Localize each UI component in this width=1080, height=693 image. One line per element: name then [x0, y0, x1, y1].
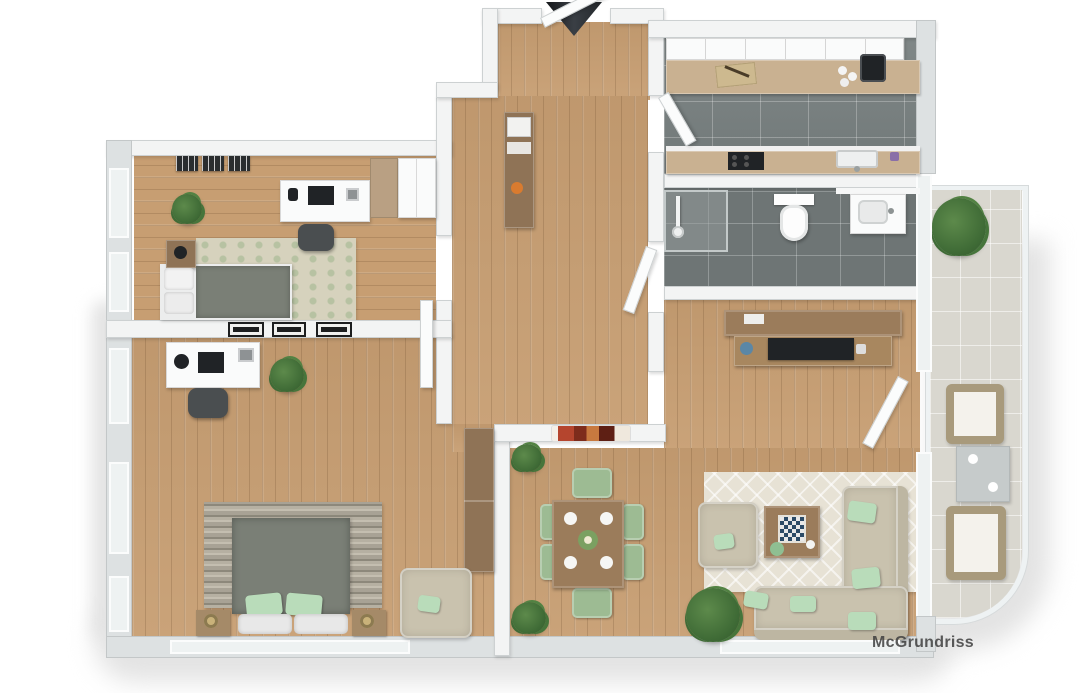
kitchen-counter-bottom	[666, 146, 920, 174]
window-left-5	[109, 576, 129, 632]
balcony-plant	[932, 198, 986, 256]
wall-bath-living-divider	[664, 286, 922, 300]
espresso-machine	[860, 54, 886, 82]
vanity-sink	[858, 200, 888, 224]
blue-vase-deco	[740, 342, 753, 355]
shower-fixture	[676, 196, 680, 230]
window-left-1	[109, 168, 129, 238]
master-desk-chair	[188, 388, 228, 418]
armchair-pillow	[713, 533, 735, 551]
sideboard-deco-right	[856, 344, 866, 354]
small-bedroom-window-vent-3	[228, 156, 250, 171]
bedroom-wall-picture-3	[316, 322, 352, 337]
balcony-chair-top	[946, 384, 1004, 444]
single-bed-pillow-1	[164, 268, 194, 290]
living-plant	[686, 588, 740, 642]
cooktop-burner-1	[732, 155, 737, 160]
master-monitor	[198, 352, 224, 373]
coffee-table-mint-deco	[770, 542, 784, 556]
small-bedroom-window-vent-2	[202, 156, 224, 171]
master-plant	[270, 358, 304, 392]
kitchen-cup-1	[838, 66, 847, 75]
window-left-2	[109, 252, 129, 312]
hall-cabinet-box	[507, 142, 531, 154]
dining-centerpiece	[578, 530, 598, 550]
dining-chair-right-1	[622, 504, 644, 540]
small-bedroom-door	[420, 300, 433, 388]
shower	[664, 190, 728, 252]
single-bed-blanket	[196, 266, 290, 318]
wall-hall-left-lower	[436, 334, 452, 424]
bedroom-wall-picture-2	[272, 322, 306, 337]
cutting-board	[715, 62, 757, 88]
dining-plate-2	[600, 512, 613, 525]
sofa-pillow-5	[848, 612, 876, 630]
wall-entry-step	[436, 82, 498, 98]
cooktop-burner-3	[732, 162, 737, 167]
small-bedroom-chair	[298, 224, 334, 251]
dining-plate-3	[564, 556, 577, 569]
wall-top-left-outer	[106, 140, 452, 156]
small-bedroom-wardrobe-wood	[370, 158, 398, 218]
dining-plate-4	[600, 556, 613, 569]
wall-hall-right-low	[648, 312, 664, 372]
single-bed-pillow-2	[164, 292, 194, 314]
sofa-pillow-2	[851, 567, 881, 590]
balcony-chair-bottom	[946, 506, 1006, 580]
coffee-table-cup	[806, 540, 815, 549]
wall-kitchen-bath-divider	[664, 174, 922, 188]
window-bottom-1	[170, 640, 410, 654]
side-table-lamp	[174, 246, 187, 259]
chessboard	[778, 515, 806, 543]
sofa-pillow-1	[847, 500, 878, 524]
master-armchair-pillow	[417, 595, 441, 614]
small-bedroom-plant	[172, 194, 202, 224]
hall-cabinet-orange-deco	[511, 182, 523, 194]
small-bedroom-wardrobe	[398, 158, 436, 218]
hallway-floor	[452, 96, 648, 432]
wall-master-right	[494, 430, 510, 656]
dining-plate-1	[564, 512, 577, 525]
toilet-tank	[774, 194, 814, 205]
dining-wall-picture	[552, 426, 630, 441]
master-desk-lamp	[174, 354, 189, 369]
dining-chair-top	[572, 468, 612, 498]
small-bedroom-monitor	[308, 186, 334, 205]
nightstand-lamp-right	[360, 614, 374, 628]
kitchen-faucet	[854, 166, 860, 172]
dining-plant-bottom	[512, 602, 546, 634]
window-right-1	[916, 174, 932, 372]
window-left-3	[109, 348, 129, 424]
master-desk-frame	[238, 348, 254, 362]
floorplan-canvas: McGrundriss	[0, 0, 1080, 693]
master-wardrobe	[464, 428, 494, 572]
wall-hall-right-mid	[648, 152, 664, 242]
wall-hall-left-upper	[436, 96, 452, 236]
corner-sofa-bottom	[754, 586, 908, 640]
sofa-pillow-3	[790, 596, 816, 612]
dining-chair-right-2	[622, 544, 644, 580]
tv	[768, 338, 854, 360]
cooktop-burner-2	[744, 155, 749, 160]
toilet-bowl	[780, 205, 808, 241]
shower-head	[672, 226, 684, 238]
sideboard-white-deco	[744, 314, 764, 324]
dining-chair-bottom	[572, 588, 612, 618]
kitchen-purple-deco	[890, 152, 899, 161]
kitchen-cup-2	[848, 72, 857, 81]
small-bedroom-window-vent-1	[176, 156, 198, 171]
double-bed-white-pillow-2	[294, 614, 348, 634]
double-bed-white-pillow-1	[238, 614, 292, 634]
kitchen-cup-3	[840, 78, 849, 87]
wall-kitchen-top-outer	[648, 20, 936, 38]
wall-entry-left	[482, 8, 498, 90]
cooktop-burner-4	[744, 162, 749, 167]
nightstand-lamp-left	[204, 614, 218, 628]
balcony-table	[956, 446, 1010, 502]
balcony-table-deco-2	[988, 482, 998, 492]
balcony-table-deco	[968, 454, 978, 464]
watermark: McGrundriss	[872, 634, 974, 652]
small-bedroom-desk-lamp	[288, 188, 298, 201]
dining-plant-top	[512, 444, 542, 472]
window-right-2	[916, 452, 932, 618]
small-bedroom-desk-frame	[346, 188, 359, 201]
vanity-faucet	[888, 208, 894, 214]
window-left-4	[109, 462, 129, 554]
hall-cabinet-books	[507, 117, 531, 137]
bedroom-wall-picture-1	[228, 322, 264, 337]
